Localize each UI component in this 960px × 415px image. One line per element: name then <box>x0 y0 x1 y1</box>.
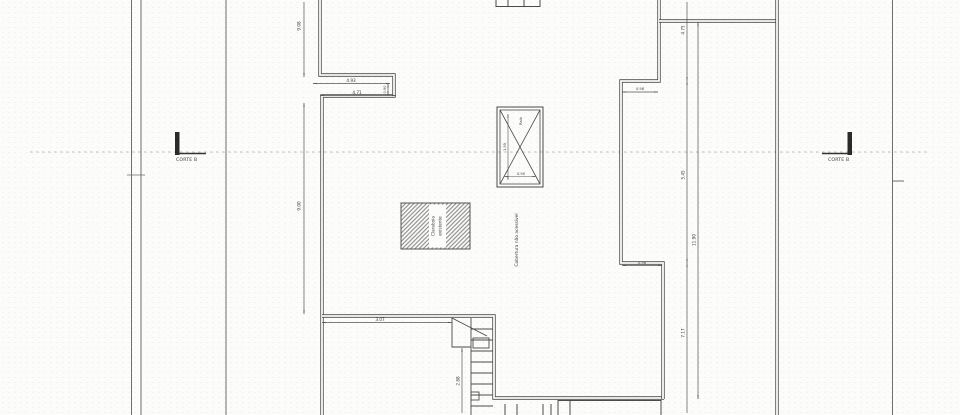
building-walls <box>320 0 777 415</box>
dim-label-left-bottom: 9.00 <box>297 201 302 211</box>
stair-treads <box>471 329 493 406</box>
site-boundary-lines <box>127 0 904 415</box>
section-marker-left-label: CORTE B <box>176 157 197 163</box>
dim-label-stair: 2.88 <box>455 376 460 386</box>
dim-label-notch-top: 4.93 <box>346 78 356 83</box>
roof-plan-drawing: Claraboia existente 1.95 0.90 Ralo Cober… <box>0 0 960 415</box>
bottom-room-box <box>505 401 661 415</box>
dim-label-wing-bottom: 3.07 <box>375 317 385 322</box>
wall-right-chain <box>621 0 663 399</box>
hatch-label-line1: Claraboia <box>431 216 436 236</box>
plan-linework: Claraboia existente 1.95 0.90 Ralo Cober… <box>0 0 960 415</box>
dim-label-right-top: 4.75 <box>680 25 685 35</box>
staircase <box>452 318 493 415</box>
chimney-box <box>496 0 540 7</box>
section-marker-right-bar <box>848 132 853 155</box>
dimension-lines <box>304 2 698 413</box>
shaft-name-label: Ralo <box>519 117 523 125</box>
stair-landing-edge <box>452 318 471 347</box>
dim-label-left-top: 9.08 <box>297 21 302 31</box>
dim-label-right-total: 11.90 <box>691 234 696 246</box>
dim-label-step-bottom: 0.98 <box>638 261 647 265</box>
hatched-skylight: Claraboia existente <box>401 203 470 249</box>
section-marker-left: CORTE B <box>175 132 206 163</box>
stair-direction-line <box>452 318 487 336</box>
section-marker-left-bar <box>175 132 180 155</box>
dim-label-step-top: 0.98 <box>636 87 645 91</box>
shaft-dim-h-label: 0.90 <box>517 172 526 176</box>
roof-note-label: Cobertura não acessível <box>513 213 520 266</box>
stair-small-box-top <box>473 338 489 348</box>
dim-label-notch-right: 0.90 <box>383 85 387 94</box>
dim-label-right-bottom: 7.17 <box>680 328 685 338</box>
section-marker-right: CORTE B <box>822 132 852 163</box>
stair-small-box-bottom <box>471 392 479 400</box>
wall-left-chain <box>320 0 394 415</box>
hatch-label-line2: existente <box>438 216 443 236</box>
dim-label-notch-bottom: 4.71 <box>352 90 362 95</box>
shaft-dim-v-label: 1.95 <box>503 143 507 151</box>
dim-label-right-mid: 5.45 <box>680 170 685 180</box>
section-marker-right-label: CORTE B <box>828 157 849 163</box>
bottom-door-ticks <box>505 404 551 415</box>
